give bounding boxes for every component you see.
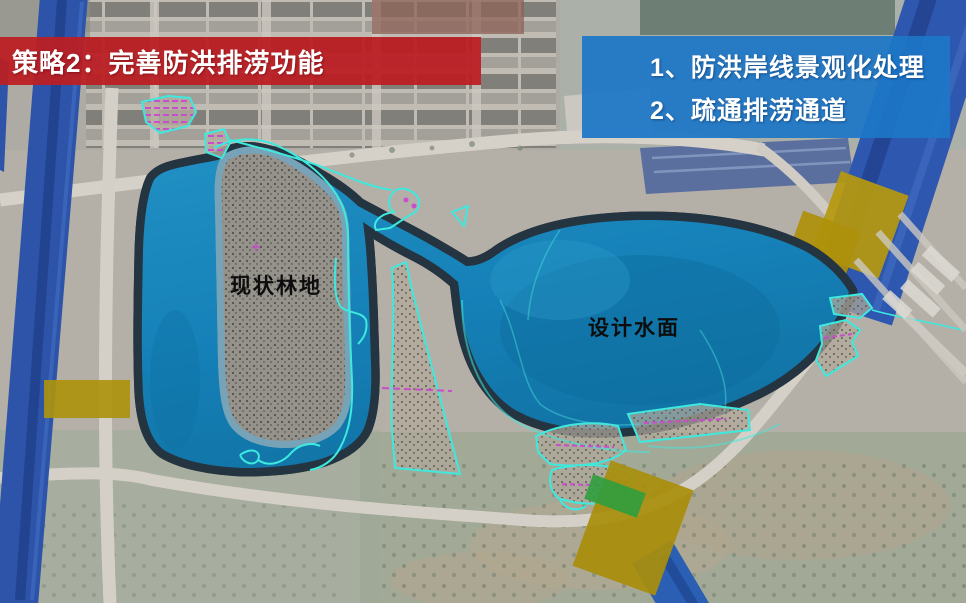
note-item-1: 1、防洪岸线景观化处理 [650,48,950,84]
road-west-vertical [105,88,112,603]
notes-box: 1、防洪岸线景观化处理 2、疏通排涝通道 [582,36,950,138]
slide-root: 策略2：完善防洪排涝功能 1、防洪岸线景观化处理 2、疏通排涝通道 现状林地 设… [0,0,966,603]
water-highlight [490,240,630,320]
water-depth-shade [150,310,200,450]
note-item-2: 2、疏通排涝通道 [650,91,950,127]
label-design-water: 设计水面 [588,312,680,342]
label-existing-forest: 现状林地 [230,270,322,300]
red-roof-row [372,0,524,34]
strategy-banner: 策略2：完善防洪排涝功能 [0,37,481,85]
road-crossing-west [44,380,130,418]
large-roof-teal [640,0,895,35]
tree-speckles [40,500,340,603]
strategy-banner-label: 策略2：完善防洪排涝功能 [12,43,324,80]
